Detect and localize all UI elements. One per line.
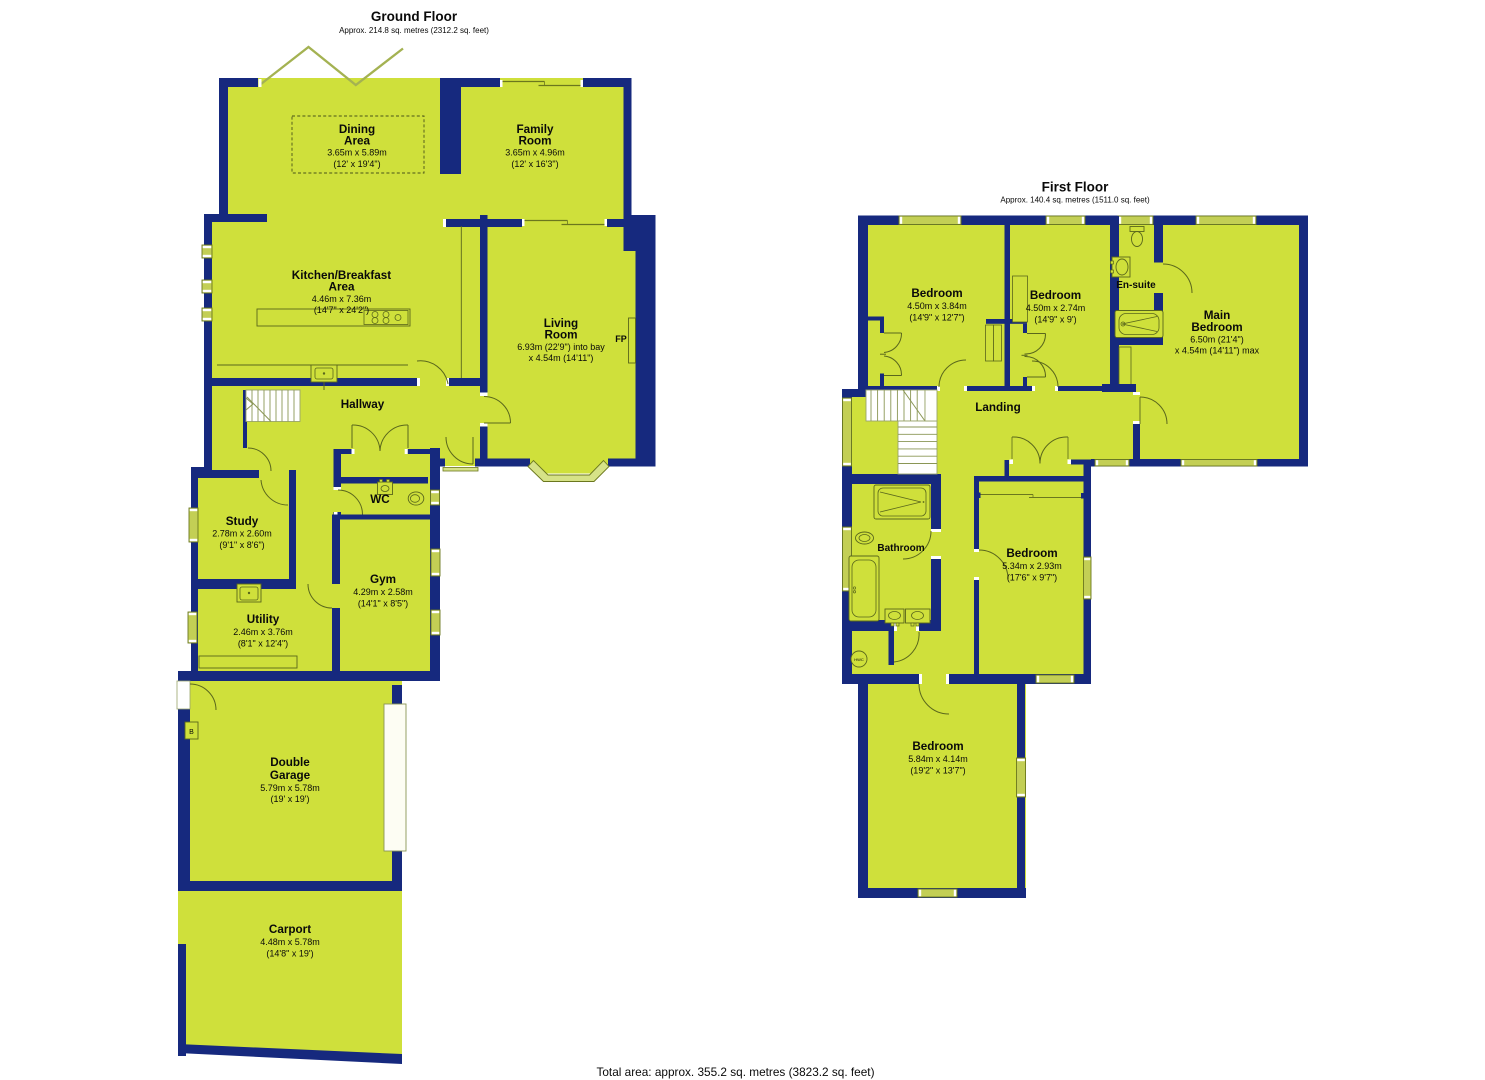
svg-text:3.65m x 4.96m: 3.65m x 4.96m <box>505 148 565 158</box>
svg-text:Garage: Garage <box>270 769 311 782</box>
svg-text:4.50m x 3.84m: 4.50m x 3.84m <box>907 301 967 311</box>
svg-text:First Floor: First Floor <box>1042 180 1109 195</box>
svg-text:x 4.54m (14'11") max: x 4.54m (14'11") max <box>1175 346 1260 356</box>
svg-text:4.29m x 2.58m: 4.29m x 2.58m <box>353 587 413 597</box>
svg-text:Bedroom: Bedroom <box>912 740 963 753</box>
svg-text:Area: Area <box>344 135 370 148</box>
svg-text:Gym: Gym <box>370 573 396 586</box>
svg-text:5.84m x 4.14m: 5.84m x 4.14m <box>908 754 968 764</box>
svg-text:Room: Room <box>544 329 577 342</box>
svg-text:Landing: Landing <box>975 401 1020 414</box>
svg-text:Approx. 214.8 sq. metres (2312: Approx. 214.8 sq. metres (2312.2 sq. fee… <box>339 26 489 35</box>
svg-text:Carport: Carport <box>269 923 311 936</box>
svg-text:Bathroom: Bathroom <box>877 543 924 554</box>
svg-text:Bedroom: Bedroom <box>911 287 962 300</box>
svg-text:(14'7" x 24'2"): (14'7" x 24'2") <box>314 305 369 315</box>
svg-text:(8'1" x 12'4"): (8'1" x 12'4") <box>238 639 288 649</box>
svg-text:Area: Area <box>329 281 355 294</box>
svg-text:(12' x 16'3"): (12' x 16'3") <box>511 159 558 169</box>
svg-text:Total area: approx. 355.2 sq.: Total area: approx. 355.2 sq. metres (38… <box>596 1065 874 1079</box>
svg-text:HWC: HWC <box>854 657 864 662</box>
svg-text:Study: Study <box>226 515 259 528</box>
svg-text:6.93m (22'9") into bay: 6.93m (22'9") into bay <box>517 342 605 352</box>
svg-text:(12' x 19'4"): (12' x 19'4") <box>333 159 380 169</box>
svg-text:4.46m x 7.36m: 4.46m x 7.36m <box>312 294 372 304</box>
svg-text:(9'1" x 8'6"): (9'1" x 8'6") <box>219 540 264 550</box>
svg-text:B: B <box>189 729 194 736</box>
svg-text:Ground Floor: Ground Floor <box>371 9 458 24</box>
svg-text:(19'2" x 13'7"): (19'2" x 13'7") <box>910 766 965 776</box>
svg-text:Hallway: Hallway <box>341 398 385 411</box>
svg-text:(14'9" x 12'7"): (14'9" x 12'7") <box>909 313 964 323</box>
svg-text:5.34m x 2.93m: 5.34m x 2.93m <box>1002 561 1062 571</box>
svg-text:FP: FP <box>615 334 627 344</box>
svg-text:4.48m x 5.78m: 4.48m x 5.78m <box>260 937 320 947</box>
svg-text:x 4.54m (14'11"): x 4.54m (14'11") <box>529 353 594 363</box>
svg-text:(14'9" x 9'): (14'9" x 9') <box>1034 315 1076 325</box>
svg-text:Bedroom: Bedroom <box>1191 321 1242 334</box>
svg-text:(14'1" x 8'5"): (14'1" x 8'5") <box>358 599 408 609</box>
svg-text:Bedroom: Bedroom <box>1006 547 1057 560</box>
svg-text:Double: Double <box>270 756 310 769</box>
svg-text:(17'6" x 9'7"): (17'6" x 9'7") <box>1007 573 1057 583</box>
svg-text:WC: WC <box>370 493 390 506</box>
svg-text:5.79m x 5.78m: 5.79m x 5.78m <box>260 783 320 793</box>
svg-text:Utility: Utility <box>247 613 280 626</box>
svg-text:2.78m x 2.60m: 2.78m x 2.60m <box>212 529 272 539</box>
svg-text:(14'8" x 19'): (14'8" x 19') <box>266 949 313 959</box>
svg-text:Room: Room <box>518 135 551 148</box>
svg-text:(19' x 19'): (19' x 19') <box>271 794 310 804</box>
svg-text:6.50m (21'4"): 6.50m (21'4") <box>1190 335 1243 345</box>
svg-text:3.65m x 5.89m: 3.65m x 5.89m <box>327 148 387 158</box>
svg-text:En-suite: En-suite <box>1116 280 1156 291</box>
svg-text:4.50m x 2.74m: 4.50m x 2.74m <box>1026 303 1086 313</box>
svg-text:2.46m x 3.76m: 2.46m x 3.76m <box>233 627 293 637</box>
svg-text:Approx. 140.4 sq. metres (1511: Approx. 140.4 sq. metres (1511.0 sq. fee… <box>1000 196 1150 205</box>
svg-text:Bedroom: Bedroom <box>1030 289 1081 302</box>
